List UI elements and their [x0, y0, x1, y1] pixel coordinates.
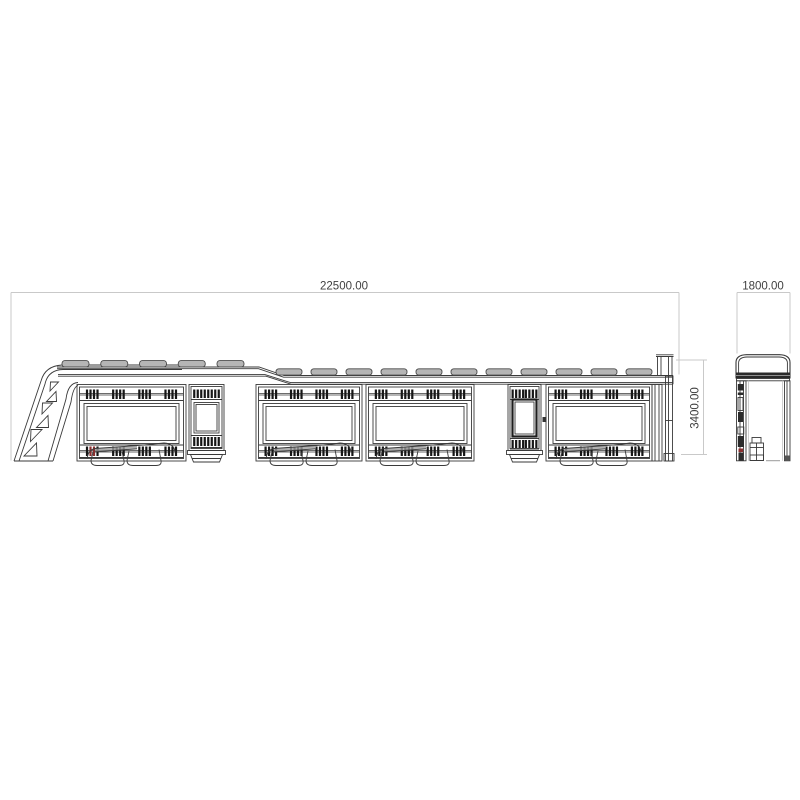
vent-bar	[641, 447, 643, 457]
rect	[652, 385, 662, 462]
bay-window-outer	[263, 404, 355, 444]
vent-bar	[408, 390, 410, 400]
vent-bar	[211, 437, 213, 446]
vent-bar	[587, 390, 589, 400]
vent-bar	[609, 390, 611, 400]
right-end-post	[652, 376, 674, 461]
bay-window-outer	[373, 404, 467, 444]
truss-cutout	[50, 382, 59, 391]
vent-bar	[430, 390, 432, 400]
vent-stack-body	[658, 357, 673, 376]
vent-bar	[554, 390, 556, 400]
post-fitting	[739, 453, 744, 461]
vent-bar	[434, 447, 436, 457]
vent-bar	[142, 390, 144, 400]
rect	[752, 438, 761, 444]
vent-bar	[218, 437, 220, 446]
roof-pad	[346, 369, 372, 375]
roof-pad	[381, 369, 407, 375]
outer-corner-post	[666, 376, 673, 461]
vent-bar	[96, 390, 98, 400]
vent-bar	[525, 440, 527, 448]
roof-pad	[101, 361, 128, 367]
roof-pad	[276, 369, 302, 375]
vent-bar	[200, 390, 202, 399]
cad-drawing: 22500.00 1800.00 3400.00	[0, 0, 800, 800]
vent-bar	[616, 390, 618, 400]
roof-pad	[626, 369, 652, 375]
vent-bar	[93, 390, 95, 400]
vent-bar	[351, 447, 353, 457]
vent-bar	[515, 440, 517, 448]
front-elevation	[14, 355, 674, 466]
roof-pad	[451, 369, 477, 375]
post-fitting-accent	[739, 449, 744, 453]
vent-bar	[297, 390, 299, 400]
vent-bar	[319, 447, 321, 457]
post-fitting	[785, 456, 790, 462]
kiosk-display	[513, 400, 537, 437]
vent-bar	[275, 390, 277, 400]
vent-bar	[315, 390, 317, 400]
vent-bar	[411, 390, 413, 400]
vent-bar	[145, 390, 147, 400]
roof-pad	[521, 369, 547, 375]
vent-bar	[123, 390, 125, 400]
vent-bar	[430, 447, 432, 457]
vent-bar	[344, 390, 346, 400]
vent-bar	[512, 440, 514, 448]
shelter-bay	[546, 385, 652, 466]
vent-bar	[453, 390, 455, 400]
roof-pad	[591, 369, 617, 375]
vent-bar	[434, 390, 436, 400]
vent-bar	[322, 447, 324, 457]
shelter-bay	[366, 385, 474, 466]
roof-pad	[62, 361, 89, 367]
bay-window-inner	[87, 407, 176, 441]
vent-bar	[631, 447, 633, 457]
dimension-width: 1800.00	[737, 281, 790, 354]
vent-bar	[164, 390, 166, 400]
vent-bar	[565, 390, 567, 400]
vent-bar	[149, 390, 151, 400]
vent-bar	[535, 440, 537, 448]
vent-bar	[583, 390, 585, 400]
vent-bar	[427, 390, 429, 400]
vent-bar	[214, 390, 216, 399]
dimension-height: 3400.00	[676, 360, 707, 455]
vent-bar	[204, 437, 206, 446]
truss-cutout	[24, 443, 37, 456]
vent-bar	[460, 390, 462, 400]
vent-bar	[268, 390, 270, 400]
vent-bar	[145, 447, 147, 457]
vent-bar	[164, 447, 166, 457]
vent-bar	[341, 447, 343, 457]
vent-bar	[200, 437, 202, 446]
shelter-bay	[77, 385, 186, 466]
vent-bar	[175, 390, 177, 400]
post-fitting	[738, 398, 743, 411]
vent-bar	[580, 390, 582, 400]
roof-pad	[416, 369, 442, 375]
vent-bar	[86, 390, 88, 400]
vent-bar	[561, 390, 563, 400]
vent-bar	[512, 390, 514, 399]
vent-bar	[535, 390, 537, 399]
kiosk-column	[188, 385, 226, 463]
roof	[57, 361, 673, 385]
support-inner-right-edge	[48, 383, 78, 462]
dim-width-label: 1800.00	[742, 281, 784, 293]
post-fitting	[738, 384, 744, 391]
vent-bar	[264, 390, 266, 400]
dim-length-label: 22500.00	[320, 281, 368, 293]
vent-bar	[193, 390, 195, 399]
vent-bar	[437, 390, 439, 400]
vent-bar	[612, 447, 614, 457]
vent-bar	[138, 390, 140, 400]
vent-bar	[204, 390, 206, 399]
truss-cutout	[31, 430, 43, 442]
roof-pad	[178, 361, 205, 367]
vent-bar	[89, 390, 91, 400]
roof-vent-stack	[656, 355, 674, 376]
vent-bar	[375, 390, 377, 400]
vent-bar	[207, 437, 209, 446]
truss-cutout	[47, 392, 57, 402]
vent-bar	[116, 390, 118, 400]
vent-bar	[271, 390, 273, 400]
vent-bar	[634, 390, 636, 400]
truss-cutout	[42, 403, 53, 414]
vent-bar	[616, 447, 618, 457]
vent-bar	[322, 390, 324, 400]
kiosk-frame-inner	[510, 387, 539, 449]
side-bench-end	[750, 438, 764, 461]
vent-bar	[300, 390, 302, 400]
vent-bar	[522, 440, 524, 448]
vent-bar	[382, 447, 384, 457]
vent-bar	[605, 390, 607, 400]
bay-window-outer	[84, 404, 179, 444]
kiosk-column	[507, 385, 543, 463]
vent-bar	[463, 390, 465, 400]
vent-bar	[453, 447, 455, 457]
vent-bar	[207, 390, 209, 399]
post-fitting	[738, 427, 744, 434]
vent-bar	[463, 447, 465, 457]
vent-bar	[218, 390, 220, 399]
vent-bar	[326, 390, 328, 400]
vent-bar	[341, 390, 343, 400]
vent-bar	[197, 390, 199, 399]
bay-window-inner	[556, 407, 642, 441]
vent-bar	[264, 447, 266, 457]
vent-bar	[519, 390, 521, 399]
vent-bar	[631, 390, 633, 400]
vent-bar	[634, 447, 636, 457]
kiosk-base-cap	[507, 451, 543, 455]
vent-bar	[351, 390, 353, 400]
post-fitting	[738, 393, 744, 396]
roof-pad	[140, 361, 167, 367]
vent-bar	[519, 440, 521, 448]
vent-bar	[93, 447, 95, 457]
vent-bar	[641, 390, 643, 400]
vent-bar	[456, 390, 458, 400]
vent-bar	[558, 390, 560, 400]
vent-bar	[609, 447, 611, 457]
vent-bar	[138, 447, 140, 457]
vent-bar	[385, 390, 387, 400]
vent-bar	[168, 390, 170, 400]
roof-pad	[556, 369, 582, 375]
vent-bar	[437, 447, 439, 457]
truss-cutout	[37, 416, 49, 428]
vent-bar	[293, 390, 295, 400]
vent-bar	[638, 390, 640, 400]
kiosk-display-inner	[196, 405, 217, 432]
bay-window-inner	[266, 407, 352, 441]
vent-bar	[119, 390, 121, 400]
vent-bar	[456, 447, 458, 457]
kiosk-display	[194, 403, 219, 434]
vent-bar	[401, 390, 403, 400]
vent-bar	[211, 390, 213, 399]
vent-bar	[149, 447, 151, 457]
side-elevation	[736, 355, 791, 461]
roof-pad	[486, 369, 512, 375]
vent-bar	[532, 390, 534, 399]
vent-bar	[525, 390, 527, 399]
vent-bar	[193, 437, 195, 446]
vent-bar	[344, 447, 346, 457]
vent-bar	[590, 390, 592, 400]
roof-pad	[217, 361, 244, 367]
vent-bar	[171, 390, 173, 400]
support-inner-edge	[19, 370, 182, 462]
roof-pad	[311, 369, 337, 375]
kiosk-display-inner	[515, 402, 534, 434]
vent-bar	[378, 390, 380, 400]
side-roof-cap-inner	[739, 357, 788, 373]
post-fitting	[738, 436, 744, 447]
vent-bar	[528, 390, 530, 399]
shelter-bay	[256, 385, 362, 466]
vent-bar	[142, 447, 144, 457]
vent-bar	[404, 390, 406, 400]
vent-bar	[319, 390, 321, 400]
vent-bar	[612, 390, 614, 400]
vent-bar	[522, 390, 524, 399]
vent-bar	[214, 437, 216, 446]
vent-bar	[382, 390, 384, 400]
dim-height-label: 3400.00	[690, 387, 702, 429]
vent-bar	[348, 390, 350, 400]
vent-bar	[112, 390, 114, 400]
vent-bar	[554, 447, 556, 457]
drawing-canvas: 22500.00 1800.00 3400.00	[0, 0, 800, 800]
vent-bar	[528, 440, 530, 448]
vent-bar	[515, 390, 517, 399]
vent-bar	[326, 447, 328, 457]
vent-bar	[197, 437, 199, 446]
post-fitting	[738, 412, 743, 422]
kiosk-base-cap	[188, 451, 226, 455]
vent-bar	[290, 390, 292, 400]
bay-window-outer	[553, 404, 645, 444]
vent-bar	[427, 447, 429, 457]
vent-bar	[532, 440, 534, 448]
vent-bar	[168, 447, 170, 457]
support-outer-right-edge	[53, 386, 78, 462]
bay-window-inner	[376, 407, 464, 441]
